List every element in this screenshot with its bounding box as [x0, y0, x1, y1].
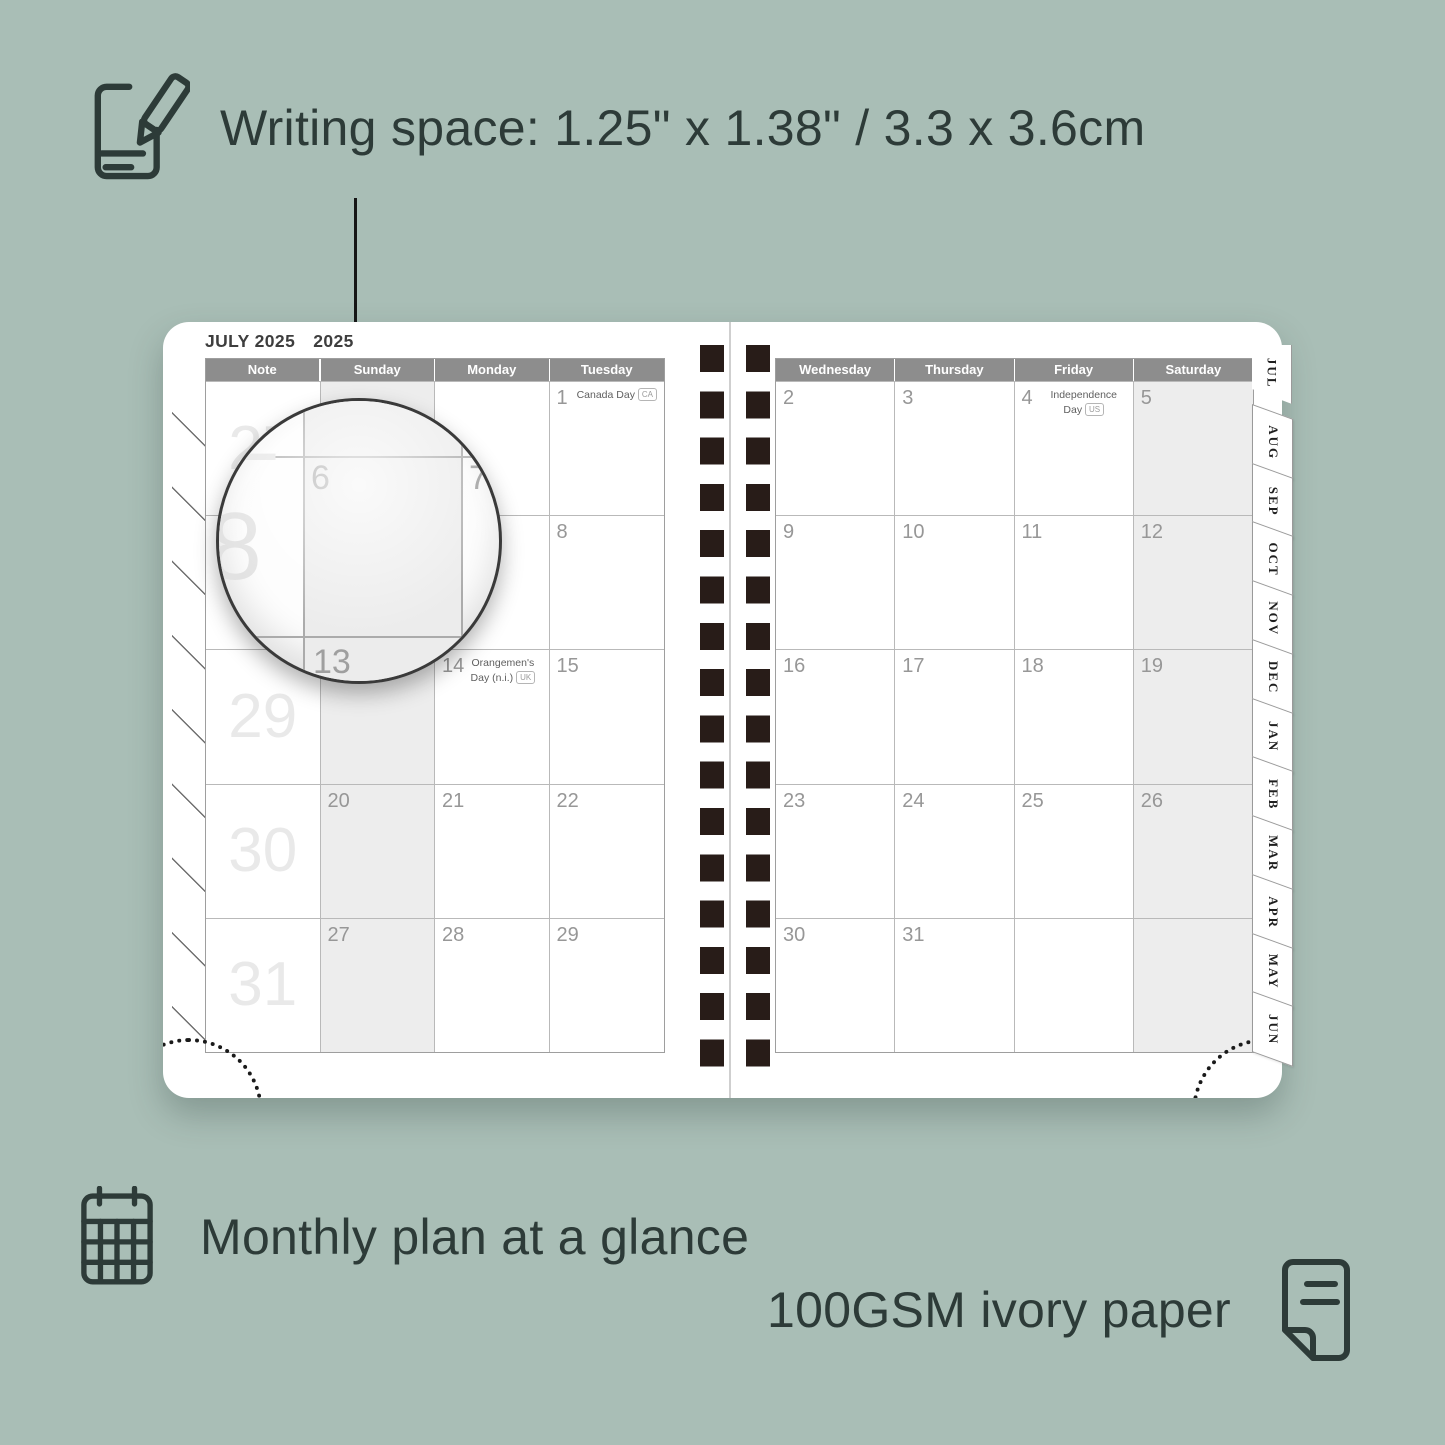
month-tab-jul: JUL [1252, 345, 1292, 404]
calendar-grid-right: WednesdayThursdayFridaySaturday234Indepe… [775, 358, 1254, 1053]
day-cell: 18 [1015, 649, 1134, 783]
day-cell: 2 [776, 381, 895, 515]
column-header: Thursday [895, 359, 1014, 381]
column-header: Note [206, 359, 321, 381]
paper-text: 100GSM ivory paper [767, 1281, 1231, 1339]
month-tab-label: MAR [1265, 834, 1281, 871]
column-header: Tuesday [550, 359, 665, 381]
month-tab-label: APR [1265, 895, 1281, 928]
magnifier-sheen [219, 401, 499, 681]
month-tab-label: JAN [1265, 720, 1281, 751]
month-tab-label: DEC [1265, 660, 1281, 693]
day-number: 2 [783, 388, 794, 409]
day-cell: 15 [550, 649, 665, 783]
day-cell: 21 [435, 784, 550, 918]
day-cell: 26 [1134, 784, 1253, 918]
day-number: 19 [1141, 656, 1163, 677]
month-tab-label: MAY [1265, 953, 1281, 989]
day-number: 27 [328, 925, 350, 946]
day-number: 21 [442, 791, 464, 812]
paper-sheet-icon [1273, 1258, 1353, 1362]
week-number-cell: 30 [206, 784, 321, 918]
writing-note-icon [88, 72, 190, 184]
tab-edge [1250, 390, 1294, 407]
year-label: 2025 [313, 331, 354, 352]
day-cell: 8 [550, 515, 665, 649]
month-tab-label: JUL [1264, 357, 1280, 388]
day-number: 8 [557, 522, 568, 543]
holiday-label: Independence Day US [1042, 388, 1126, 417]
planner-right-page: WednesdayThursdayFridaySaturday234Indepe… [730, 322, 1282, 1098]
day-number: 31 [902, 925, 924, 946]
day-number: 15 [557, 656, 579, 677]
writing-space-callout: Writing space: 1.25" x 1.38" / 3.3 x 3.6… [88, 72, 1145, 184]
day-number: 17 [902, 656, 924, 677]
column-header: Wednesday [776, 359, 895, 381]
day-cell: 4Independence Day US [1015, 381, 1134, 515]
day-number: 24 [902, 791, 924, 812]
column-header: Saturday [1134, 359, 1253, 381]
day-cell: 12 [1134, 515, 1253, 649]
country-badge: UK [516, 671, 535, 684]
day-number: 20 [328, 791, 350, 812]
day-cell: 9 [776, 515, 895, 649]
page-title: JULY 2025 2025 [205, 331, 354, 352]
day-number: 3 [902, 388, 913, 409]
month-tab-label: NOV [1265, 601, 1281, 636]
day-number: 5 [1141, 388, 1152, 409]
day-cell: 24 [895, 784, 1014, 918]
holiday-label: Canada Day CA [577, 388, 657, 403]
day-number: 12 [1141, 522, 1163, 543]
month-tab-label: AUG [1265, 424, 1281, 459]
day-cell: 11 [1015, 515, 1134, 649]
day-cell [1134, 918, 1253, 1052]
day-number: 30 [783, 925, 805, 946]
product-image: Writing space: 1.25" x 1.38" / 3.3 x 3.6… [0, 0, 1445, 1445]
paper-callout: 100GSM ivory paper [0, 1258, 1353, 1362]
week-number-cell: 31 [206, 918, 321, 1052]
day-cell: 5 [1134, 381, 1253, 515]
day-number: 9 [783, 522, 794, 543]
writing-space-text: Writing space: 1.25" x 1.38" / 3.3 x 3.6… [220, 99, 1145, 157]
day-cell: 27 [321, 918, 436, 1052]
month-tab-label: SEP [1265, 486, 1281, 516]
magnifier-circle: 2 28 6 7 13 [216, 398, 502, 684]
day-cell: 19 [1134, 649, 1253, 783]
day-number: 16 [783, 656, 805, 677]
day-cell: 1Canada Day CA [550, 381, 665, 515]
week-number: 30 [228, 820, 297, 882]
day-number: 10 [902, 522, 924, 543]
column-header: Sunday [321, 359, 436, 381]
day-number: 29 [557, 925, 579, 946]
day-cell: 25 [1015, 784, 1134, 918]
day-number: 22 [557, 791, 579, 812]
day-number: 26 [1141, 791, 1163, 812]
week-number: 29 [228, 686, 297, 748]
week-number: 31 [228, 954, 297, 1016]
day-cell: 17 [895, 649, 1014, 783]
planner-spread: JULY 2025 2025 NoteSundayMondayTuesday27… [163, 322, 1282, 1098]
day-number: 28 [442, 925, 464, 946]
day-cell [1015, 918, 1134, 1052]
month-tab-label: OCT [1265, 542, 1281, 576]
column-header: Monday [435, 359, 550, 381]
day-cell: 28 [435, 918, 550, 1052]
column-header: Friday [1015, 359, 1134, 381]
day-number: 23 [783, 791, 805, 812]
spiral-binding-holes-left [700, 345, 724, 1086]
day-number: 4 [1022, 388, 1033, 409]
day-number: 1 [557, 388, 568, 409]
month-tabs: JULAUGSEPOCTNOVDECJANFEBMARAPRMAYJUN [1252, 345, 1292, 1050]
day-number: 25 [1022, 791, 1044, 812]
month-title: JULY 2025 [205, 331, 295, 352]
holiday-label: Orangemen's Day (n.i.) UK [464, 656, 541, 685]
month-tab-label: FEB [1265, 779, 1281, 810]
day-cell: 20 [321, 784, 436, 918]
day-number: 11 [1022, 522, 1043, 543]
page-gutter [729, 322, 731, 1098]
month-tab-label: JUN [1265, 1014, 1281, 1045]
day-cell: 29 [550, 918, 665, 1052]
spiral-binding-holes-right [746, 345, 770, 1086]
day-cell: 23 [776, 784, 895, 918]
day-cell: 10 [895, 515, 1014, 649]
day-cell: 31 [895, 918, 1014, 1052]
day-cell: 3 [895, 381, 1014, 515]
day-number: 18 [1022, 656, 1044, 677]
country-badge: US [1085, 403, 1104, 416]
day-cell: 16 [776, 649, 895, 783]
day-cell: 30 [776, 918, 895, 1052]
day-cell: 22 [550, 784, 665, 918]
country-badge: CA [638, 388, 657, 401]
